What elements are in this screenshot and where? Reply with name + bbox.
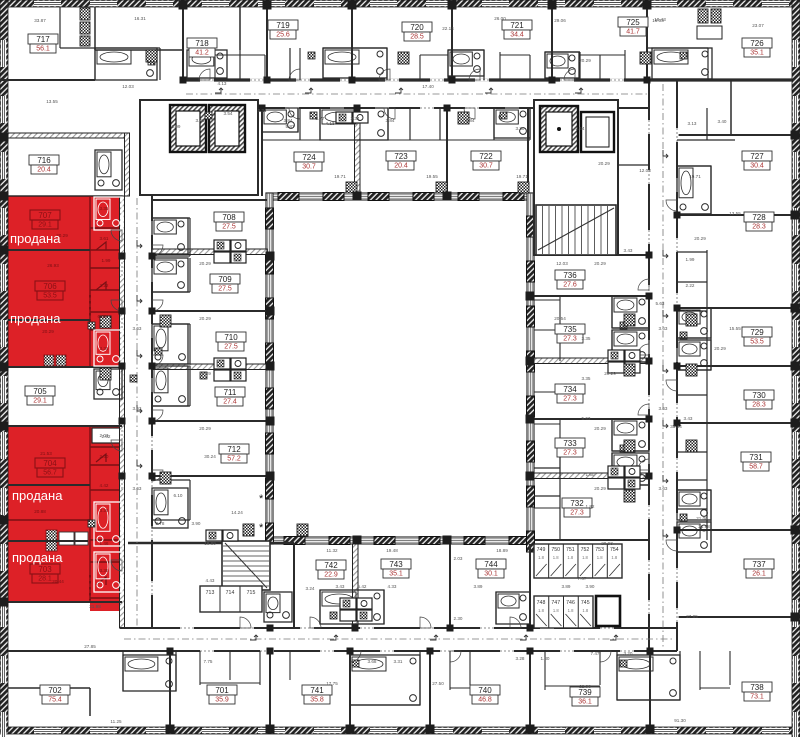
svg-text:27.3: 27.3: [570, 510, 584, 517]
svg-text:753: 753: [595, 547, 604, 553]
svg-text:3.34: 3.34: [351, 116, 360, 121]
svg-text:21.98: 21.98: [698, 524, 710, 529]
svg-text:708: 708: [222, 213, 236, 222]
svg-text:*: *: [259, 522, 264, 534]
svg-text:20.29: 20.29: [199, 426, 211, 431]
svg-text:27.85: 27.85: [686, 614, 698, 619]
svg-text:1.8: 1.8: [582, 608, 588, 613]
svg-text:33.87: 33.87: [34, 18, 46, 23]
svg-text:35.9: 35.9: [215, 697, 229, 704]
svg-text:22.9: 22.9: [324, 572, 338, 579]
svg-text:706: 706: [43, 282, 57, 291]
svg-text:11.32: 11.32: [326, 548, 338, 553]
svg-text:12.03: 12.03: [122, 84, 134, 89]
svg-text:729: 729: [750, 328, 764, 337]
svg-text:719: 719: [276, 21, 290, 30]
svg-text:20.29: 20.29: [199, 316, 211, 321]
svg-text:27.5: 27.5: [224, 344, 238, 351]
svg-text:3.43: 3.43: [336, 584, 345, 589]
svg-text:3.90: 3.90: [586, 584, 595, 589]
svg-text:3.35: 3.35: [100, 206, 109, 211]
svg-text:35.8: 35.8: [310, 697, 324, 704]
svg-text:6.10: 6.10: [174, 493, 183, 498]
svg-text:27.3: 27.3: [563, 396, 577, 403]
svg-text:1.60: 1.60: [586, 472, 595, 477]
svg-text:12.03: 12.03: [556, 261, 568, 266]
svg-text:715: 715: [247, 590, 256, 596]
svg-text:19.48: 19.48: [386, 548, 398, 553]
svg-text:18.89: 18.89: [496, 548, 508, 553]
svg-text:740: 740: [478, 686, 492, 695]
svg-text:1.8: 1.8: [611, 555, 617, 560]
svg-text:13.55: 13.55: [46, 99, 58, 104]
svg-text:1.8: 1.8: [538, 608, 544, 613]
svg-text:3.77: 3.77: [316, 116, 325, 121]
svg-text:731: 731: [749, 453, 763, 462]
svg-text:745: 745: [581, 600, 590, 606]
svg-text:1.99: 1.99: [172, 124, 181, 129]
svg-text:3.35: 3.35: [100, 346, 109, 351]
svg-text:27.85: 27.85: [84, 644, 96, 649]
svg-text:28.3: 28.3: [752, 402, 766, 409]
svg-text:1.46: 1.46: [100, 541, 109, 546]
svg-text:26.1: 26.1: [752, 571, 766, 578]
svg-text:20.29: 20.29: [714, 346, 726, 351]
svg-text:27.5: 27.5: [222, 224, 236, 231]
svg-text:733: 733: [563, 439, 577, 448]
svg-text:продана: продана: [10, 311, 61, 326]
svg-text:730: 730: [752, 391, 766, 400]
svg-text:27.4: 27.4: [223, 399, 237, 406]
svg-text:3.35: 3.35: [100, 568, 109, 573]
svg-text:714: 714: [226, 590, 235, 596]
svg-text:2.22: 2.22: [686, 283, 695, 288]
svg-text:3.43: 3.43: [196, 118, 205, 123]
svg-text:711: 711: [224, 388, 237, 397]
svg-text:3.54: 3.54: [224, 111, 233, 116]
svg-text:18.89: 18.89: [204, 541, 216, 546]
svg-text:57.2: 57.2: [227, 456, 241, 463]
svg-text:21.06: 21.06: [696, 516, 708, 521]
svg-text:5.63: 5.63: [656, 301, 665, 306]
svg-text:3.35: 3.35: [582, 376, 591, 381]
svg-text:721: 721: [510, 21, 524, 30]
svg-text:743: 743: [389, 560, 403, 569]
svg-text:20.54: 20.54: [554, 316, 566, 321]
svg-text:5.63: 5.63: [582, 416, 591, 421]
svg-text:3.24: 3.24: [306, 586, 315, 591]
svg-text:5.87: 5.87: [286, 124, 295, 129]
svg-text:3.89: 3.89: [562, 584, 571, 589]
svg-text:20.29: 20.29: [199, 261, 211, 266]
svg-text:3.63: 3.63: [659, 326, 668, 331]
svg-text:25.6: 25.6: [276, 32, 290, 39]
svg-text:23.07: 23.07: [752, 23, 764, 28]
svg-text:21.98: 21.98: [89, 604, 101, 609]
svg-text:4.40: 4.40: [684, 309, 693, 314]
svg-text:3.84: 3.84: [386, 118, 395, 123]
svg-text:4.13: 4.13: [326, 121, 335, 126]
svg-text:725: 725: [626, 18, 640, 27]
svg-text:702: 702: [48, 686, 62, 695]
svg-text:35.44: 35.44: [670, 424, 682, 429]
svg-text:6.69: 6.69: [98, 314, 107, 319]
svg-text:53.5: 53.5: [750, 339, 764, 346]
svg-text:3.28: 3.28: [516, 656, 525, 661]
svg-text:705: 705: [33, 387, 47, 396]
svg-text:16.31: 16.31: [134, 16, 146, 21]
svg-text:709: 709: [218, 275, 232, 284]
svg-text:91.30: 91.30: [674, 718, 686, 723]
svg-text:3.61: 3.61: [100, 236, 109, 241]
svg-text:2.03: 2.03: [454, 556, 463, 561]
svg-text:701: 701: [215, 686, 229, 695]
svg-text:751: 751: [566, 547, 575, 553]
svg-text:21.53: 21.53: [40, 451, 52, 456]
svg-text:704: 704: [43, 459, 57, 468]
svg-text:41.2: 41.2: [195, 50, 209, 57]
svg-text:20.29: 20.29: [579, 58, 591, 63]
svg-text:2.30: 2.30: [100, 454, 109, 459]
svg-text:20.29: 20.29: [598, 161, 610, 166]
svg-text:4.33: 4.33: [388, 584, 397, 589]
svg-text:17.75: 17.75: [326, 681, 338, 686]
svg-text:56.1: 56.1: [36, 46, 50, 53]
svg-text:16.03: 16.03: [652, 18, 664, 23]
svg-text:20.29: 20.29: [594, 426, 606, 431]
svg-text:4.13: 4.13: [218, 81, 227, 86]
svg-text:19.71: 19.71: [516, 174, 528, 179]
svg-text:3.63: 3.63: [659, 486, 668, 491]
svg-text:продана: продана: [12, 488, 63, 503]
svg-text:20.88: 20.88: [34, 509, 46, 514]
svg-text:750: 750: [551, 547, 560, 553]
svg-text:1.8: 1.8: [582, 555, 588, 560]
svg-text:36.1: 36.1: [578, 699, 592, 706]
svg-text:1.8: 1.8: [553, 555, 559, 560]
svg-text:3.40: 3.40: [718, 119, 727, 124]
svg-text:17.40: 17.40: [422, 84, 434, 89]
svg-text:30.7: 30.7: [479, 163, 493, 170]
svg-text:726: 726: [750, 39, 764, 48]
svg-text:27.3: 27.3: [563, 450, 577, 457]
svg-text:713: 713: [206, 590, 215, 596]
svg-text:30.24: 30.24: [204, 454, 216, 459]
svg-text:712: 712: [227, 445, 241, 454]
svg-text:754: 754: [610, 547, 619, 553]
svg-text:1.80: 1.80: [541, 656, 550, 661]
svg-text:2.78: 2.78: [156, 521, 165, 526]
svg-text:3.90: 3.90: [192, 521, 201, 526]
svg-text:26.93: 26.93: [47, 263, 59, 268]
svg-text:735: 735: [563, 325, 577, 334]
svg-text:3.13: 3.13: [688, 121, 697, 126]
svg-text:14.24: 14.24: [231, 510, 243, 515]
svg-text:73.1: 73.1: [750, 694, 764, 701]
svg-text:3.43: 3.43: [624, 248, 633, 253]
svg-text:723: 723: [394, 152, 408, 161]
svg-text:3.30: 3.30: [516, 126, 525, 131]
svg-text:3.35: 3.35: [100, 508, 109, 513]
svg-text:734: 734: [563, 385, 577, 394]
svg-text:20.29: 20.29: [594, 261, 606, 266]
svg-text:1.99: 1.99: [686, 257, 695, 262]
svg-text:20.29: 20.29: [199, 371, 211, 376]
svg-text:30.4: 30.4: [750, 163, 764, 170]
svg-text:28.1: 28.1: [38, 576, 52, 583]
svg-text:722: 722: [479, 152, 493, 161]
svg-text:3.34: 3.34: [258, 108, 267, 113]
svg-text:7.47: 7.47: [591, 651, 600, 656]
svg-text:41.7: 41.7: [626, 29, 640, 36]
svg-text:749: 749: [537, 547, 546, 553]
svg-text:3.63: 3.63: [133, 326, 142, 331]
svg-text:20.44: 20.44: [52, 579, 64, 584]
svg-text:752: 752: [581, 547, 590, 553]
svg-text:2.22: 2.22: [100, 283, 109, 288]
svg-text:2.54: 2.54: [576, 126, 585, 131]
svg-text:20.29: 20.29: [594, 486, 606, 491]
svg-text:3.63: 3.63: [133, 406, 142, 411]
svg-text:718: 718: [195, 39, 209, 48]
svg-text:716: 716: [37, 156, 51, 165]
svg-text:29.1: 29.1: [38, 222, 52, 229]
svg-text:728: 728: [752, 213, 766, 222]
svg-text:748: 748: [537, 600, 546, 606]
svg-text:*: *: [259, 493, 264, 505]
svg-text:732: 732: [570, 499, 584, 508]
svg-text:13.55: 13.55: [729, 211, 741, 216]
svg-text:742: 742: [324, 561, 338, 570]
svg-text:30.7: 30.7: [302, 164, 316, 171]
svg-text:3.84: 3.84: [466, 118, 475, 123]
svg-text:746: 746: [566, 600, 575, 606]
svg-text:35.1: 35.1: [750, 50, 764, 57]
svg-text:20.29: 20.29: [604, 371, 616, 376]
svg-text:3.31: 3.31: [394, 659, 403, 664]
svg-text:75.4: 75.4: [48, 697, 62, 704]
svg-text:34.4: 34.4: [510, 32, 524, 39]
svg-text:20.4: 20.4: [394, 163, 408, 170]
svg-text:739: 739: [578, 688, 592, 697]
svg-text:29.1: 29.1: [33, 398, 47, 405]
svg-text:1.8: 1.8: [568, 608, 574, 613]
svg-text:4.42: 4.42: [100, 483, 109, 488]
svg-text:741: 741: [310, 686, 324, 695]
svg-text:30.1: 30.1: [484, 571, 498, 578]
svg-text:3.35: 3.35: [582, 336, 591, 341]
svg-text:58.7: 58.7: [749, 464, 763, 471]
svg-text:736: 736: [563, 271, 577, 280]
svg-text:26.00: 26.00: [494, 16, 506, 21]
svg-text:3.89: 3.89: [474, 584, 483, 589]
svg-text:53.5: 53.5: [43, 293, 57, 300]
svg-text:1.8: 1.8: [567, 555, 573, 560]
svg-text:4.43: 4.43: [206, 578, 215, 583]
svg-text:707: 707: [38, 211, 52, 220]
svg-text:20.29: 20.29: [42, 329, 54, 334]
svg-text:3.68: 3.68: [368, 659, 377, 664]
svg-text:12.03: 12.03: [639, 168, 651, 173]
svg-text:1.8: 1.8: [553, 608, 559, 613]
svg-text:56.7: 56.7: [43, 470, 57, 477]
svg-text:46.8: 46.8: [478, 697, 492, 704]
svg-text:738: 738: [750, 683, 764, 692]
svg-text:3.84: 3.84: [284, 118, 293, 123]
svg-text:19.55: 19.55: [426, 174, 438, 179]
svg-text:11.25: 11.25: [110, 719, 122, 724]
svg-text:29.06: 29.06: [554, 18, 566, 23]
svg-text:27.50: 27.50: [432, 681, 444, 686]
svg-text:703: 703: [38, 565, 52, 574]
svg-text:1.8: 1.8: [538, 555, 544, 560]
svg-text:20.4: 20.4: [37, 167, 51, 174]
svg-text:1.8: 1.8: [597, 555, 603, 560]
svg-text:22.08: 22.08: [579, 684, 591, 689]
svg-text:744: 744: [484, 560, 498, 569]
svg-text:2.02: 2.02: [102, 434, 111, 439]
svg-text:19.71: 19.71: [689, 174, 701, 179]
svg-text:5.42: 5.42: [358, 584, 367, 589]
svg-text:продана: продана: [10, 231, 61, 246]
svg-text:724: 724: [302, 153, 316, 162]
svg-text:27.3: 27.3: [563, 336, 577, 343]
svg-text:3.20: 3.20: [624, 651, 633, 656]
svg-text:3.63: 3.63: [659, 406, 668, 411]
svg-text:727: 727: [750, 152, 764, 161]
svg-text:продана: продана: [12, 550, 63, 565]
svg-text:15.55: 15.55: [729, 326, 741, 331]
svg-text:28.3: 28.3: [752, 224, 766, 231]
svg-text:747: 747: [551, 600, 560, 606]
svg-text:710: 710: [224, 333, 238, 342]
svg-text:28.5: 28.5: [410, 34, 424, 41]
svg-text:27.5: 27.5: [218, 286, 232, 293]
svg-text:20.93: 20.93: [601, 541, 613, 546]
svg-text:22.14: 22.14: [442, 26, 454, 31]
svg-text:3.43: 3.43: [684, 416, 693, 421]
svg-text:35.1: 35.1: [389, 571, 403, 578]
svg-text:717: 717: [36, 35, 50, 44]
svg-text:19.71: 19.71: [334, 174, 346, 179]
svg-text:2.30: 2.30: [454, 616, 463, 621]
svg-text:20.29: 20.29: [694, 236, 706, 241]
svg-text:27.6: 27.6: [563, 282, 577, 289]
svg-text:720: 720: [410, 23, 424, 32]
svg-text:1.99: 1.99: [102, 258, 111, 263]
svg-text:7.67: 7.67: [578, 576, 587, 581]
svg-text:1.82: 1.82: [586, 504, 595, 509]
svg-text:3.63: 3.63: [133, 486, 142, 491]
svg-text:737: 737: [752, 560, 766, 569]
svg-text:7.75: 7.75: [204, 659, 213, 664]
